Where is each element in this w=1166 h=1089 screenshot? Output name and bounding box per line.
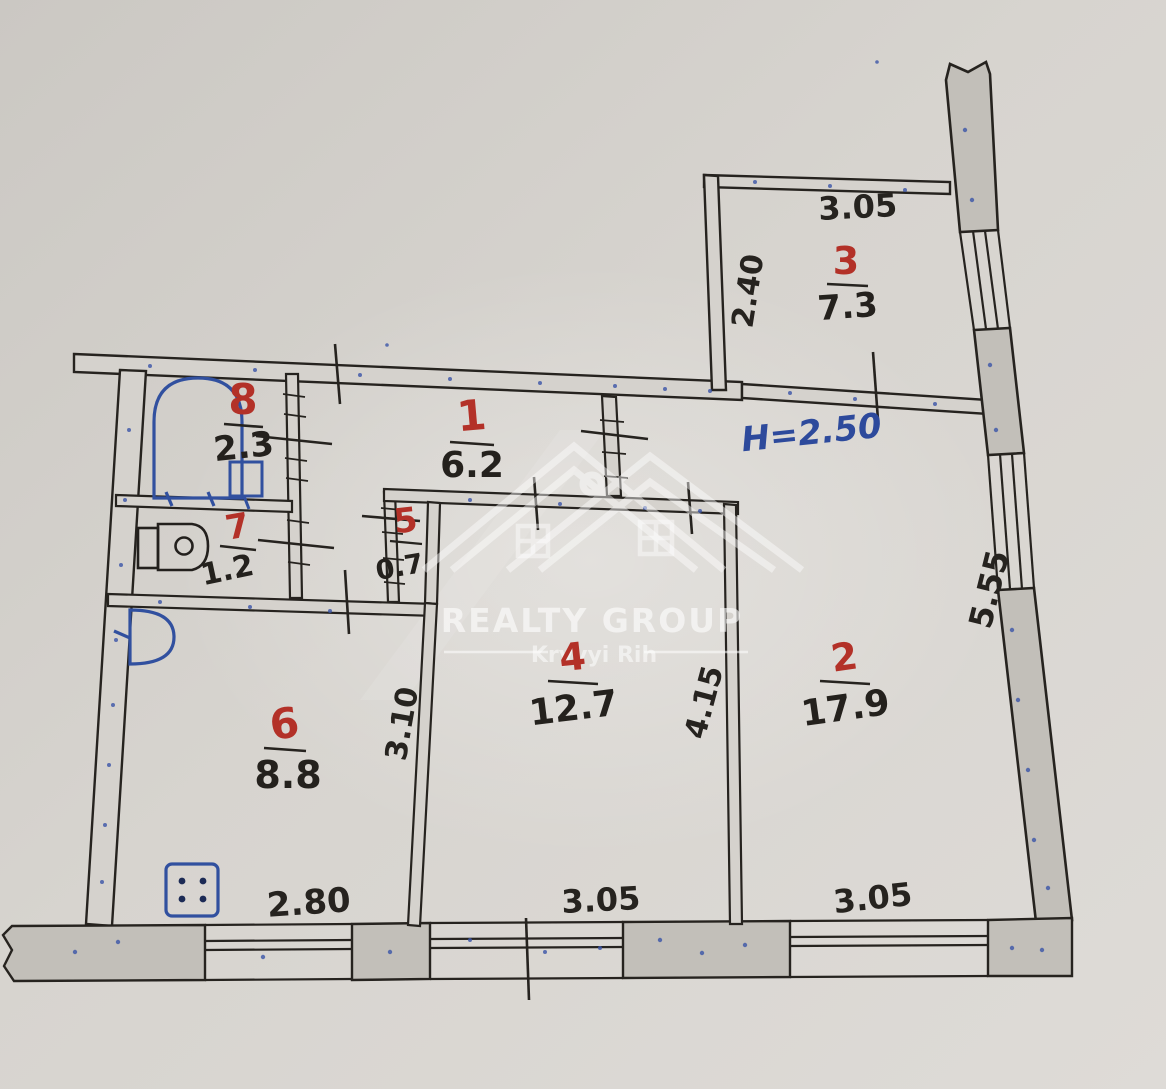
wall-closet-right [425, 502, 440, 604]
room-8-area: 2.3 [212, 424, 276, 470]
room-3-number: 3 [833, 239, 859, 283]
dim-kitchen-width: 2.80 [266, 880, 352, 926]
watermark-subtitle: Kryvyi Rih [531, 643, 657, 668]
room-5-number: 5 [392, 500, 420, 542]
room-4-number: 4 [557, 634, 588, 681]
watermark-title: REALTY GROUP [441, 601, 744, 640]
dim-room4-width: 3.05 [560, 879, 641, 921]
room-1-area: 6.2 [440, 445, 504, 486]
floorplan-drawing: REALTY GROUP Kryvyi Rih 8 2.3 1 6.2 3 7.… [0, 0, 1166, 1089]
wall-bottom-segC [623, 921, 790, 978]
wall-bottom-segA [3, 925, 205, 981]
room-8-number: 8 [228, 375, 257, 424]
floorplan-photo: REALTY GROUP Kryvyi Rih 8 2.3 1 6.2 3 7.… [0, 0, 1166, 1089]
room-3-area: 7.3 [816, 285, 879, 329]
dim-balcony-width: 3.05 [817, 186, 898, 228]
wall-bottom-segD [988, 918, 1072, 976]
room-6-area: 8.8 [254, 753, 321, 797]
room-1-number: 1 [455, 390, 488, 441]
